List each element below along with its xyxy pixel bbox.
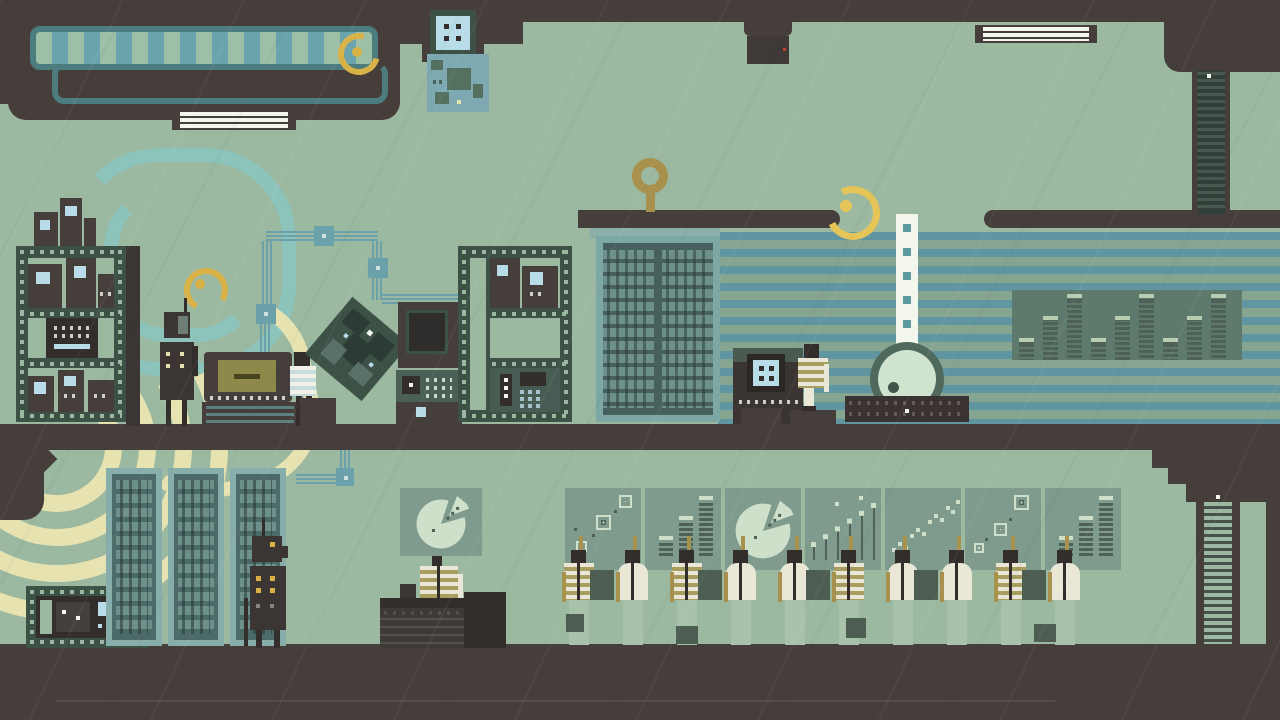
panel-buttons	[426, 394, 452, 398]
ladder-lower[interactable]	[1204, 502, 1232, 644]
wire-junction	[256, 304, 276, 324]
wheel-pin	[888, 382, 899, 393]
worker-torso	[726, 563, 756, 600]
screen-dot	[759, 366, 764, 371]
device-leds	[100, 292, 112, 296]
rack-leds	[182, 480, 210, 634]
sprocket-dots	[20, 312, 122, 316]
rack-cell	[28, 258, 114, 308]
wheel-base	[845, 396, 969, 422]
worker-chair	[947, 600, 967, 645]
side-terminal[interactable]	[698, 570, 722, 600]
console-screen	[753, 360, 779, 386]
sprocket-dots	[30, 590, 34, 644]
signal-spiral-dot	[195, 279, 205, 289]
worker-torso	[942, 563, 972, 600]
sprocket-dots	[462, 250, 466, 418]
robot-led	[270, 576, 275, 581]
floor-seam	[55, 700, 1055, 702]
sprocket-dots	[20, 250, 122, 254]
signal-spiral-dot	[840, 200, 852, 212]
server-rack[interactable]	[168, 468, 224, 646]
side-terminal[interactable]	[806, 570, 830, 600]
screen-dot	[769, 366, 774, 371]
worker-head	[1057, 550, 1072, 564]
device-screen	[530, 272, 543, 285]
worker-arm	[670, 572, 674, 602]
light-fixture	[975, 25, 1097, 43]
device-leds	[64, 394, 78, 398]
robot-led	[270, 604, 274, 608]
pcb-component	[473, 84, 483, 98]
worker-suspender	[739, 563, 742, 600]
white-pixel	[1207, 74, 1211, 78]
worker-chair	[893, 600, 913, 645]
bottom-right-step	[1152, 450, 1280, 468]
worker-arm	[1048, 572, 1052, 602]
desk-worker[interactable]	[616, 550, 650, 645]
pcb-component	[431, 60, 443, 70]
device-screen	[40, 220, 50, 230]
device	[98, 274, 114, 308]
keypad	[520, 390, 544, 394]
worker-arm	[562, 572, 566, 602]
base-button	[416, 407, 426, 417]
awning-inner-rail	[52, 62, 388, 104]
white-pixel	[905, 409, 909, 413]
panel-buttons	[426, 386, 452, 390]
device-screen	[64, 376, 76, 386]
worker-head	[625, 550, 640, 564]
worker-arm	[824, 364, 829, 392]
wire	[262, 241, 272, 305]
robot-leg	[256, 630, 262, 648]
ceiling-scanner[interactable]	[422, 2, 484, 62]
base-led-row	[849, 401, 965, 405]
robot-body	[160, 342, 194, 400]
robot-led	[270, 588, 275, 593]
led	[76, 616, 80, 620]
worker-suspender	[631, 563, 634, 600]
panel-buttons	[426, 378, 452, 382]
equalizer-bar	[1091, 338, 1106, 360]
wire	[340, 448, 350, 468]
worker-arm	[886, 572, 890, 602]
scanner-screen	[436, 16, 470, 50]
pie-presenter[interactable]	[380, 488, 510, 648]
sprocket-dots	[20, 362, 122, 366]
device	[28, 264, 62, 308]
floor-crate	[566, 614, 584, 632]
device	[84, 218, 96, 246]
floor-crate	[1034, 624, 1056, 642]
antenna-stem	[646, 192, 655, 212]
device-leds	[530, 292, 546, 296]
antenna-ring	[632, 158, 668, 194]
led	[504, 394, 508, 398]
keypad-dots	[54, 334, 92, 338]
worker-head	[787, 550, 802, 564]
worker-arm	[832, 572, 836, 602]
sprocket-dots	[20, 414, 122, 418]
desk-side-box	[464, 592, 506, 648]
equalizer-bar	[1067, 294, 1082, 360]
lower-floor	[0, 644, 1280, 720]
screen-dot	[456, 36, 461, 41]
keypad-dots	[54, 326, 92, 330]
equalizer-bar	[1187, 316, 1202, 360]
right-wall-column	[1266, 500, 1280, 646]
desk-top	[380, 598, 466, 608]
stack-base	[396, 402, 462, 426]
pcb-component	[447, 68, 471, 90]
rack-cell	[28, 318, 114, 358]
worker-suspender	[1009, 563, 1012, 600]
sprocket-dots	[462, 250, 568, 254]
presenter-sign	[400, 488, 482, 556]
worker-arm	[616, 572, 620, 602]
pcb-led	[368, 362, 374, 368]
worker-suspender	[847, 563, 850, 600]
worker-torso	[834, 563, 864, 600]
light-fixture	[172, 110, 296, 130]
side-terminal[interactable]	[914, 570, 938, 600]
worker-suspender	[901, 563, 904, 600]
worker-torso	[290, 366, 316, 396]
equalizer-panel	[1012, 290, 1242, 360]
robot-cane	[244, 598, 248, 646]
circuit-board[interactable]	[427, 54, 489, 112]
rack-post	[126, 246, 140, 426]
wire-junction	[314, 226, 334, 246]
worker-suspender	[793, 563, 796, 600]
bottom-right-step	[1168, 468, 1280, 484]
floor-crate	[846, 618, 866, 638]
worker-arm	[994, 572, 998, 602]
top-right-mass	[1164, 0, 1280, 72]
light-tubes	[180, 112, 288, 128]
device-leds	[94, 394, 108, 398]
chart-canvas	[400, 488, 482, 556]
worker-arm	[778, 572, 782, 602]
panel-led	[409, 383, 413, 387]
gold-target-dot	[352, 47, 362, 57]
server-column	[662, 250, 713, 408]
side-terminal[interactable]	[1022, 570, 1046, 600]
rack-leds	[120, 480, 148, 634]
keypad	[520, 404, 544, 408]
film-rack-left[interactable]	[16, 246, 126, 422]
robot-leg	[274, 630, 280, 648]
robot-antenna	[262, 518, 265, 536]
led	[504, 378, 508, 382]
rack-side-column	[470, 258, 486, 410]
wire	[372, 278, 382, 300]
worker-head	[895, 550, 910, 564]
wire	[266, 231, 314, 241]
robot-jaw	[280, 546, 288, 558]
wire-junction	[336, 468, 354, 486]
key-antenna	[632, 158, 668, 212]
worker-suspender	[955, 563, 958, 600]
slot	[520, 372, 546, 386]
robot-led	[180, 364, 184, 368]
device-screen	[497, 265, 508, 276]
equalizer-bar	[1115, 316, 1130, 360]
pcb-pins	[433, 80, 445, 84]
worker-suspender	[577, 563, 580, 600]
server-rack[interactable]	[106, 468, 162, 646]
sprocket-dots	[462, 414, 568, 418]
robot-led	[166, 364, 170, 368]
worker-head	[679, 550, 694, 564]
wire	[372, 241, 382, 259]
worker-head	[804, 344, 819, 358]
desk-vents	[380, 618, 466, 646]
robot-upper[interactable]	[156, 298, 198, 428]
step-box	[790, 410, 836, 425]
key-row	[210, 396, 288, 400]
worker-legs	[804, 388, 814, 408]
equalizer-bar	[1211, 294, 1226, 360]
camera-bracket	[744, 22, 792, 36]
sprocket-dots	[118, 250, 122, 418]
server-cabinet[interactable]	[596, 236, 720, 422]
worker-chair	[623, 600, 643, 645]
slot	[40, 600, 52, 634]
film-rack-right[interactable]	[458, 246, 572, 422]
screen-dot	[769, 376, 774, 381]
worker-torso	[1050, 563, 1080, 600]
worker-arm	[724, 572, 728, 602]
robot-led	[256, 604, 260, 608]
game-scene	[0, 0, 1280, 720]
ladder-upper[interactable]	[1192, 70, 1230, 214]
worker-head	[841, 550, 856, 564]
robot-led	[256, 588, 261, 593]
equalizer-bar	[1043, 316, 1058, 360]
crate	[300, 398, 336, 426]
desk-worker[interactable]	[940, 550, 974, 645]
desk-rivets	[384, 611, 462, 615]
machine-stack[interactable]	[396, 300, 462, 426]
worker-head	[1003, 550, 1018, 564]
robot-led	[166, 352, 170, 356]
device-screen	[74, 266, 86, 278]
rack-cell	[490, 258, 560, 308]
worker-arm	[940, 572, 944, 602]
led	[62, 610, 66, 614]
monitor-screen	[406, 310, 448, 354]
robot-eye	[270, 542, 275, 547]
side-terminal[interactable]	[590, 570, 614, 600]
sprocket-dots	[20, 250, 24, 418]
worker-chair	[785, 600, 805, 645]
pcb-led	[457, 100, 461, 104]
screen-dot	[444, 24, 449, 29]
light-tubes	[983, 27, 1089, 41]
presenter-sign-chart	[400, 488, 482, 556]
server-column	[603, 250, 654, 408]
worker-shoes	[802, 406, 816, 411]
base-vents	[206, 406, 294, 423]
operator-console[interactable]	[796, 344, 832, 412]
rack-cell	[490, 318, 560, 358]
wire-junction	[368, 258, 388, 278]
worker-chair	[1001, 600, 1021, 645]
robot-leg	[166, 400, 171, 426]
worker-chair	[1055, 600, 1075, 645]
robot-leg	[182, 400, 187, 426]
worker-chair	[731, 600, 751, 645]
device-screen	[36, 272, 50, 284]
camera-led	[783, 48, 786, 51]
desk-front	[380, 608, 466, 648]
device-screen	[34, 382, 46, 394]
worker-suspender	[685, 563, 688, 600]
equalizer-bar	[1139, 294, 1154, 360]
equalizer-bar	[1163, 338, 1178, 360]
keypad	[520, 397, 544, 401]
device-screen	[65, 206, 77, 216]
console-led-row	[739, 400, 799, 404]
robot-led	[256, 576, 261, 581]
security-camera[interactable]	[747, 36, 789, 64]
pcb-component	[435, 92, 449, 104]
rack-cell	[28, 368, 114, 412]
console-drawer	[741, 408, 781, 425]
desk-worker[interactable]	[724, 550, 758, 645]
presenter-arm	[458, 574, 463, 600]
screen-dash	[234, 374, 260, 379]
screen-dot	[456, 24, 461, 29]
upper-beam-left	[578, 210, 840, 228]
pcb-block	[320, 338, 347, 365]
worker-head	[949, 550, 964, 564]
shelf-top-devices	[34, 198, 96, 246]
button-panel	[396, 370, 458, 402]
worker-head	[571, 550, 586, 564]
worker-head	[733, 550, 748, 564]
robot-lower[interactable]	[244, 518, 294, 648]
typewriter-machine[interactable]	[202, 350, 298, 426]
ladder-rungs	[1197, 72, 1225, 212]
pcb-led	[366, 329, 373, 336]
equalizer-bar	[1019, 338, 1034, 360]
worker-suspender	[1063, 563, 1066, 600]
worker-torso	[618, 563, 648, 600]
white-pixel	[1216, 495, 1220, 499]
robot-arm	[192, 346, 198, 376]
led	[98, 624, 102, 628]
ladder-rungs	[1204, 506, 1232, 642]
upper-beam-right	[984, 210, 1280, 228]
keypad-device	[46, 318, 98, 358]
device-block	[56, 602, 90, 632]
wire	[296, 474, 336, 484]
robot-visor	[178, 316, 188, 334]
led	[504, 386, 508, 390]
floor-crate	[676, 626, 698, 644]
awning	[8, 4, 400, 120]
robot-led	[180, 352, 184, 356]
rack-cell	[490, 368, 560, 412]
keypad-slot	[54, 344, 90, 349]
screen-dot	[759, 376, 764, 381]
robot-head	[252, 536, 282, 562]
screen-dot	[444, 36, 449, 41]
sprocket-dots	[564, 250, 568, 418]
wire	[334, 231, 378, 241]
